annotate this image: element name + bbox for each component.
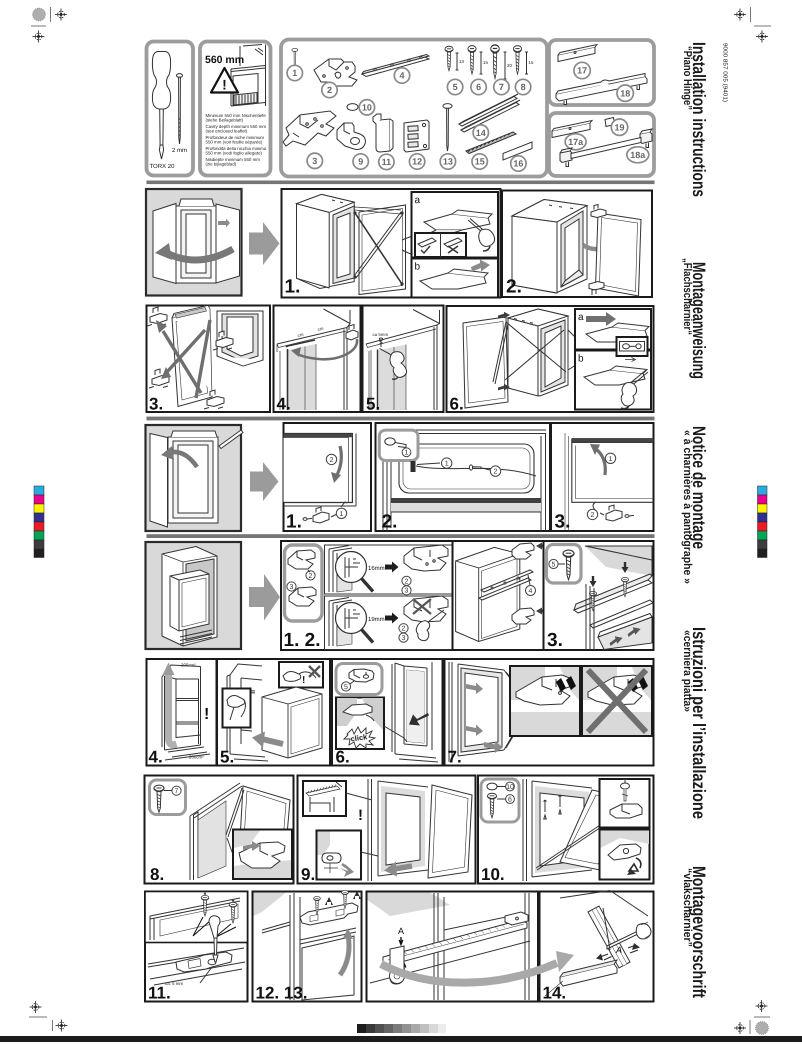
svg-text:4.: 4. [149,748,163,767]
svg-text:3: 3 [312,156,317,166]
svg-text:550 mm (vedi foglio allegato): 550 mm (vedi foglio allegato) [206,151,263,156]
svg-text:2: 2 [327,85,332,95]
svg-text:5: 5 [453,82,458,92]
svg-text:“Piano Hinge”: “Piano Hinge” [681,46,693,110]
svg-text:2: 2 [309,573,313,580]
svg-text:b: b [578,354,584,365]
svg-text:12. 13.: 12. 13. [256,984,308,1003]
svg-text:1: 1 [445,461,449,468]
svg-text:11: 11 [382,157,392,167]
svg-text:10.: 10. [481,865,505,884]
svg-text:1: 1 [292,68,297,78]
svg-text:6: 6 [508,796,512,803]
svg-text:4: 4 [399,71,404,81]
svg-text:20: 20 [507,63,512,68]
svg-text:2: 2 [330,457,334,464]
svg-text:12: 12 [412,157,422,167]
svg-text:10: 10 [506,784,514,791]
svg-text:5.: 5. [220,748,234,767]
svg-text:2: 2 [591,512,595,519]
svg-text:9000 857 005 (9401): 9000 857 005 (9401) [722,43,729,102]
svg-text:3.: 3. [547,630,563,651]
svg-text:(see enclosed leaflet): (see enclosed leaflet) [206,129,248,134]
svg-text:1.: 1. [286,512,302,533]
svg-text:15: 15 [529,60,534,65]
svg-text:7.: 7. [448,748,462,767]
svg-text:2 mm: 2 mm [172,147,187,154]
svg-text:6.: 6. [336,748,350,767]
svg-text:9: 9 [358,157,363,167]
svg-text:19: 19 [614,122,624,132]
svg-text:8.: 8. [150,865,164,884]
svg-text:13: 13 [459,59,464,64]
svg-text:3.: 3. [149,395,163,414]
svg-text:1: 1 [609,456,613,463]
svg-text:2.: 2. [506,277,522,298]
svg-text:550 mm (voir feuille séparée): 550 mm (voir feuille séparée) [206,140,263,145]
svg-text:2: 2 [402,626,406,633]
svg-text:4: 4 [529,588,533,595]
svg-text:200cm²: 200cm² [181,663,196,668]
svg-text:7: 7 [175,788,179,795]
svg-text:1: 1 [405,450,409,457]
svg-text:3: 3 [402,635,406,642]
svg-text:„Flachscharnier“: „Flachscharnier“ [681,258,693,335]
svg-text:3: 3 [405,588,409,595]
svg-text:200cm²: 200cm² [189,755,204,760]
svg-text:16: 16 [513,159,523,169]
svg-text:13: 13 [443,157,453,167]
svg-text:!: ! [358,807,363,824]
svg-text:14: 14 [476,128,486,138]
svg-text:!: ! [204,706,209,723]
svg-text:17: 17 [577,66,587,76]
svg-text:1. 2.: 1. 2. [284,630,321,651]
svg-text:1.: 1. [285,277,301,298]
svg-text:11.: 11. [148,984,171,1003]
svg-text:a: a [578,312,584,323]
svg-text:15: 15 [475,157,485,167]
svg-text:!: ! [222,77,227,93]
svg-text:2.: 2. [382,512,398,533]
svg-text:18: 18 [620,88,630,98]
svg-text:“vlakscharnier”: “vlakscharnier” [681,868,693,947]
svg-text:TORX 20: TORX 20 [150,163,176,170]
svg-text:6.: 6. [450,395,464,414]
svg-text:(zie bijlageblad): (zie bijlageblad) [206,162,237,167]
svg-text:16mm: 16mm [368,565,385,572]
svg-text:15: 15 [483,60,488,65]
svg-text:1: 1 [340,511,344,518]
svg-text:6: 6 [476,82,481,92]
svg-text:ca 5mm: ca 5mm [373,332,389,337]
svg-text:9.: 9. [301,865,315,884]
svg-text:4.: 4. [277,395,291,414]
svg-text:(siehe Beilageblatt): (siehe Beilageblatt) [206,118,244,123]
svg-text:14.: 14. [543,984,567,1003]
svg-text:«cerniera piatta»: «cerniera piatta» [681,630,693,712]
svg-text:10: 10 [362,103,372,113]
svg-text:5: 5 [344,684,348,691]
svg-text:19mm: 19mm [368,616,385,623]
svg-text:A: A [398,926,404,936]
svg-text:2: 2 [405,578,409,585]
svg-text:5: 5 [552,561,556,568]
svg-text:18a: 18a [630,150,646,160]
svg-text:!: ! [302,675,305,686]
svg-text:3.: 3. [555,512,571,533]
svg-text:7: 7 [499,82,504,92]
svg-text:560 mm: 560 mm [205,54,244,66]
svg-text:2: 2 [494,469,498,476]
svg-text:17a: 17a [568,137,584,147]
svg-text:A: A [615,945,622,955]
svg-text:« à charnières à pantographe »: « à charnières à pantographe » [681,430,693,584]
svg-text:8: 8 [521,82,526,92]
svg-text:5.: 5. [366,395,380,414]
svg-text:a: a [415,195,421,206]
svg-text:3: 3 [290,584,294,591]
svg-text:b: b [415,262,421,273]
